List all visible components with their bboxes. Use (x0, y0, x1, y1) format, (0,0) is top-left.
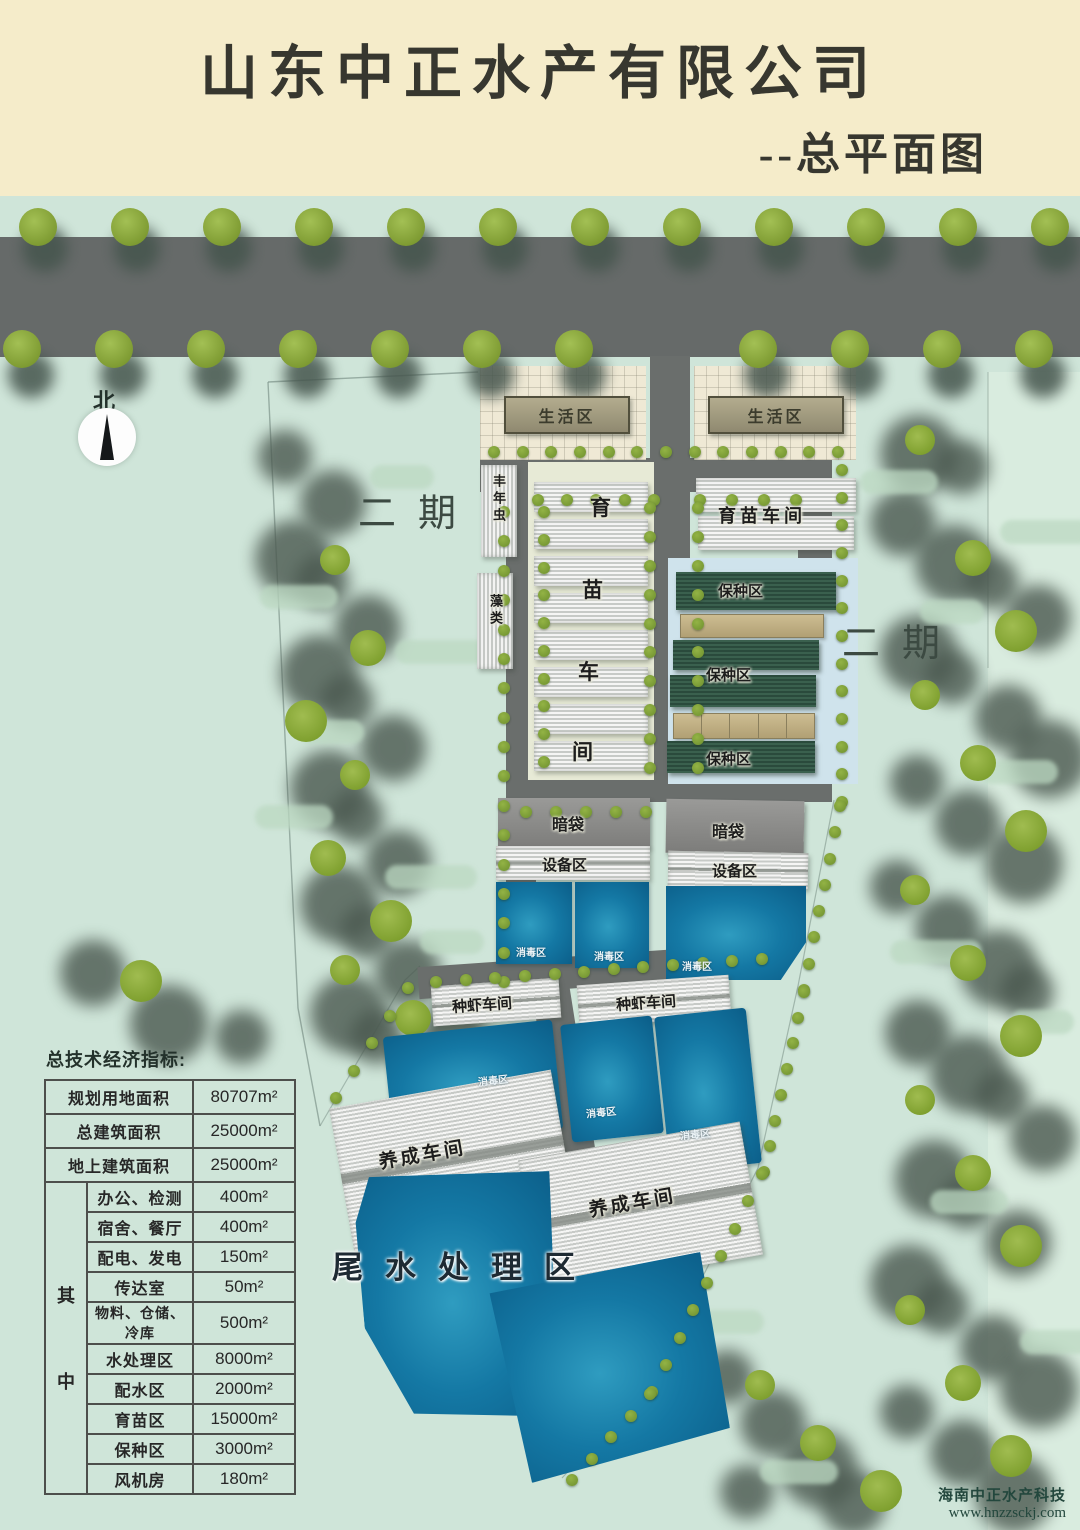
shrimp-workshop-label-left: 种虾车间 (451, 992, 512, 1017)
bush-icon (644, 618, 656, 630)
bush-icon (538, 562, 550, 574)
tree-icon (663, 208, 701, 246)
shrub-cluster (860, 470, 938, 494)
nursery-char-1: 育 (590, 492, 611, 522)
indicator-value: 25000m² (193, 1148, 295, 1182)
bush-icon (384, 1010, 396, 1022)
bush-icon (489, 972, 501, 984)
tree-icon (745, 1370, 775, 1400)
disinfection-label-2: 消毒区 (594, 948, 624, 963)
group-label-bottom: 中 (50, 1368, 82, 1394)
bush-icon (610, 806, 622, 818)
tree-shadow-blob (935, 440, 989, 494)
indicator-label: 物料、仓储、冷库 (87, 1302, 193, 1344)
bush-icon (644, 733, 656, 745)
indicator-value: 8000m² (193, 1344, 295, 1374)
shrub-cluster (395, 640, 487, 664)
bush-icon (836, 547, 848, 559)
bush-icon (538, 645, 550, 657)
indicator-value: 500m² (193, 1302, 295, 1344)
plan-subtitle: --总平面图 (759, 118, 988, 182)
bush-icon (692, 502, 704, 514)
tree-icon (905, 425, 935, 455)
bush-icon (498, 712, 510, 724)
tree-shadow-blob (880, 1385, 934, 1439)
tree-icon (571, 208, 609, 246)
bush-icon (488, 446, 500, 458)
bush-icon (792, 1012, 804, 1024)
shrub-cluster (1020, 1330, 1080, 1354)
indicator-label: 保种区 (87, 1434, 193, 1464)
site-plan-page: 山东中正水产有限公司 --总平面图 生活区 生活区 (0, 0, 1080, 1530)
indicator-value: 50m² (193, 1272, 295, 1302)
indicator-label: 风机房 (87, 1464, 193, 1494)
tree-icon (900, 875, 930, 905)
tree-shadow-blob (1010, 720, 1080, 798)
bush-icon (644, 1388, 656, 1400)
table-row: 总建筑面积25000m² (45, 1114, 295, 1148)
bush-icon (660, 1359, 672, 1371)
bush-icon (692, 618, 704, 630)
bush-icon (746, 446, 758, 458)
bush-icon (460, 974, 472, 986)
indicator-value: 2000m² (193, 1374, 295, 1404)
broodstock-label-3: 保种区 (706, 748, 751, 769)
indicator-label: 规划用地面积 (45, 1080, 193, 1114)
bush-icon (836, 713, 848, 725)
tree-icon (1005, 810, 1047, 852)
bush-icon (819, 879, 831, 891)
shrimp-workshop-label-right: 种虾车间 (615, 990, 676, 1015)
indicator-label: 配水区 (87, 1374, 193, 1404)
tree-icon (19, 208, 57, 246)
indicator-value: 3000m² (193, 1434, 295, 1464)
shrub-cluster (255, 805, 333, 829)
bush-icon (520, 806, 532, 818)
tree-icon (1015, 330, 1053, 368)
bush-icon (498, 859, 510, 871)
bush-icon (578, 966, 590, 978)
tree-icon (995, 610, 1037, 652)
shrub-cluster (930, 1190, 1008, 1214)
watermark-company: 海南中正水产科技 (938, 1484, 1066, 1505)
disinfection-label-5: 消毒区 (585, 1102, 616, 1120)
bush-icon (498, 947, 510, 959)
bush-icon (756, 1168, 768, 1180)
bush-icon (781, 1063, 793, 1075)
disinfection-label-3: 消毒区 (682, 958, 712, 973)
indicator-label: 地上建筑面积 (45, 1148, 193, 1182)
living-area-label-right: 生活区 (747, 403, 804, 427)
tree-icon (320, 545, 350, 575)
tree-icon (350, 630, 386, 666)
tree-icon (463, 330, 501, 368)
bush-icon (775, 1089, 787, 1101)
bush-icon (729, 1223, 741, 1235)
bush-icon (498, 741, 510, 753)
tree-icon (555, 330, 593, 368)
bush-icon (787, 1037, 799, 1049)
nursery-char-3: 车 (578, 656, 599, 686)
phase2-label-left: 二期 (358, 482, 478, 537)
tree-icon (479, 208, 517, 246)
tree-shadow-blob (60, 940, 126, 1006)
shrub-cluster (760, 1460, 838, 1484)
tree-icon (95, 330, 133, 368)
compass-icon (78, 408, 136, 466)
bush-icon (756, 953, 768, 965)
indicator-label: 配电、发电 (87, 1242, 193, 1272)
bush-icon (519, 970, 531, 982)
tree-icon (1031, 208, 1069, 246)
company-title: 山东中正水产有限公司 (0, 26, 1080, 110)
entrance-road (650, 356, 690, 462)
bush-icon (764, 1140, 776, 1152)
bush-icon (625, 1410, 637, 1422)
bush-icon (640, 806, 652, 818)
tree-icon (371, 330, 409, 368)
bush-icon (836, 464, 848, 476)
bush-icon (692, 733, 704, 745)
indicator-value: 180m² (193, 1464, 295, 1494)
tailwater-area-label: 尾水处理区 (332, 1242, 597, 1287)
tree-icon (279, 330, 317, 368)
bush-icon (836, 492, 848, 504)
disinfection-pond-5 (560, 1016, 664, 1143)
bush-icon (769, 1115, 781, 1127)
living-area-building-left: 生活区 (504, 396, 630, 434)
bush-icon (538, 617, 550, 629)
tree-shadow-blob (1000, 1350, 1078, 1428)
nursery-char-2: 苗 (582, 574, 603, 604)
tree-icon (1000, 1225, 1042, 1267)
tree-icon (120, 960, 162, 1002)
tree-shadow-blob (330, 790, 384, 844)
broodstock-label-2: 保种区 (706, 664, 751, 685)
indicator-value: 400m² (193, 1182, 295, 1212)
equipment-label-right: 设备区 (712, 860, 757, 881)
bush-icon (798, 986, 810, 998)
tree-icon (285, 700, 327, 742)
tree-icon (990, 1435, 1032, 1477)
tree-icon (340, 760, 370, 790)
dark-bag-label-right: 暗袋 (712, 818, 744, 842)
bush-icon (517, 446, 529, 458)
indicator-value: 25000m² (193, 1114, 295, 1148)
artemia-label: 丰年虫 (489, 474, 508, 525)
tree-icon (950, 945, 986, 981)
tree-icon (960, 745, 996, 781)
nursery-workshop-label: 育苗车间 (718, 502, 806, 528)
tree-icon (939, 208, 977, 246)
bush-icon (538, 756, 550, 768)
indicator-value: 150m² (193, 1242, 295, 1272)
nursery-building (534, 519, 648, 549)
bush-icon (549, 968, 561, 980)
tree-icon (3, 330, 41, 368)
bush-icon (561, 494, 573, 506)
tree-icon (895, 1295, 925, 1325)
shrub-cluster (260, 585, 338, 609)
tree-icon (955, 540, 991, 576)
tree-icon (387, 208, 425, 246)
tree-icon (187, 330, 225, 368)
tree-shadow-blob (360, 715, 426, 781)
shrub-cluster (385, 865, 477, 889)
bush-icon (430, 976, 442, 988)
tree-icon (923, 330, 961, 368)
tree-icon (831, 330, 869, 368)
indicators-table: 规划用地面积80707m²总建筑面积25000m²地上建筑面积25000m²其中… (44, 1079, 296, 1495)
bush-icon (803, 958, 815, 970)
bush-icon (532, 494, 544, 506)
compass-needle-icon (100, 414, 114, 460)
tree-icon (310, 840, 346, 876)
bush-icon (692, 531, 704, 543)
bush-icon (605, 1431, 617, 1443)
group-label-top: 其 (50, 1282, 82, 1308)
tree-icon (860, 1470, 902, 1512)
bush-icon (692, 762, 704, 774)
bush-icon (692, 560, 704, 572)
watermark: 海南中正水产科技 www.hnzzsckj.com (938, 1484, 1066, 1522)
bush-icon (498, 653, 510, 665)
bush-icon (586, 1453, 598, 1465)
tree-shadow-blob (258, 430, 312, 484)
indicator-label: 传达室 (87, 1272, 193, 1302)
bush-icon (538, 506, 550, 518)
bush-icon (574, 446, 586, 458)
indicator-label: 育苗区 (87, 1404, 193, 1434)
indicator-label: 办公、检测 (87, 1182, 193, 1212)
tree-shadow-blob (890, 755, 944, 809)
table-row: 规划用地面积80707m² (45, 1080, 295, 1114)
tree-icon (739, 330, 777, 368)
indicator-value: 80707m² (193, 1080, 295, 1114)
tree-icon (1000, 1015, 1042, 1057)
bush-icon (644, 531, 656, 543)
indicators-title: 总技术经济指标: (46, 1046, 304, 1072)
bush-icon (330, 1092, 342, 1104)
bush-icon (689, 446, 701, 458)
tree-shadow-blob (1010, 1105, 1076, 1171)
bush-icon (701, 1277, 713, 1289)
bush-icon (644, 762, 656, 774)
bush-icon (836, 575, 848, 587)
shrub-cluster (420, 930, 484, 954)
tree-icon (395, 1000, 431, 1036)
bush-icon (660, 446, 672, 458)
tree-icon (330, 955, 360, 985)
tree-icon (370, 900, 412, 942)
shrub-cluster (1000, 520, 1080, 544)
tree-icon (111, 208, 149, 246)
tree-icon (203, 208, 241, 246)
nursery-char-4: 间 (572, 736, 593, 766)
main-road (0, 237, 1080, 357)
indicator-label: 水处理区 (87, 1344, 193, 1374)
bush-icon (402, 982, 414, 994)
indicator-label: 总建筑面积 (45, 1114, 193, 1148)
indicator-label: 宿舍、餐厅 (87, 1212, 193, 1242)
living-area-label-left: 生活区 (538, 403, 595, 427)
bush-icon (603, 446, 615, 458)
tree-icon (800, 1425, 836, 1461)
indicator-value: 15000m² (193, 1404, 295, 1434)
disinfection-label-1: 消毒区 (516, 944, 546, 959)
broodstock-label-1: 保种区 (718, 580, 763, 601)
indicators-panel: 总技术经济指标: 规划用地面积80707m²总建筑面积25000m²地上建筑面积… (44, 1046, 304, 1495)
tree-icon (910, 680, 940, 710)
algae-label: 藻类 (486, 594, 505, 628)
bush-icon (498, 565, 510, 577)
tree-icon (945, 1365, 981, 1401)
tree-icon (295, 208, 333, 246)
equipment-label-left: 设备区 (542, 854, 587, 875)
phase2-label-right: 二期 (842, 612, 962, 667)
bush-icon (824, 853, 836, 865)
watermark-url: www.hnzzsckj.com (938, 1505, 1066, 1522)
nursery-building (534, 704, 648, 734)
bush-icon (538, 673, 550, 685)
bush-icon (566, 1474, 578, 1486)
bush-icon (674, 1332, 686, 1344)
bush-icon (834, 800, 846, 812)
bush-icon (619, 494, 631, 506)
bush-icon (692, 589, 704, 601)
tree-icon (755, 208, 793, 246)
tree-icon (905, 1085, 935, 1115)
living-area-building-right: 生活区 (708, 396, 844, 434)
bush-icon (644, 502, 656, 514)
bush-icon (644, 560, 656, 572)
bush-icon (538, 534, 550, 546)
bush-icon (836, 741, 848, 753)
title-band: 山东中正水产有限公司 --总平面图 (0, 0, 1080, 196)
bush-icon (644, 589, 656, 601)
bush-icon (348, 1065, 360, 1077)
tree-icon (955, 1155, 991, 1191)
group-cell: 其中 (45, 1182, 87, 1494)
table-row: 其中办公、检测400m² (45, 1182, 295, 1212)
bush-icon (775, 446, 787, 458)
disinfection-label-6: 消毒区 (679, 1124, 710, 1142)
dark-bag-label-left: 暗袋 (552, 811, 584, 835)
bush-icon (715, 1250, 727, 1262)
table-row: 地上建筑面积25000m² (45, 1148, 295, 1182)
bush-icon (832, 446, 844, 458)
bush-icon (498, 800, 510, 812)
tree-icon (847, 208, 885, 246)
indicator-value: 400m² (193, 1212, 295, 1242)
bush-icon (498, 888, 510, 900)
disinfection-label-4: 消毒区 (477, 1070, 508, 1088)
bush-icon (366, 1037, 378, 1049)
